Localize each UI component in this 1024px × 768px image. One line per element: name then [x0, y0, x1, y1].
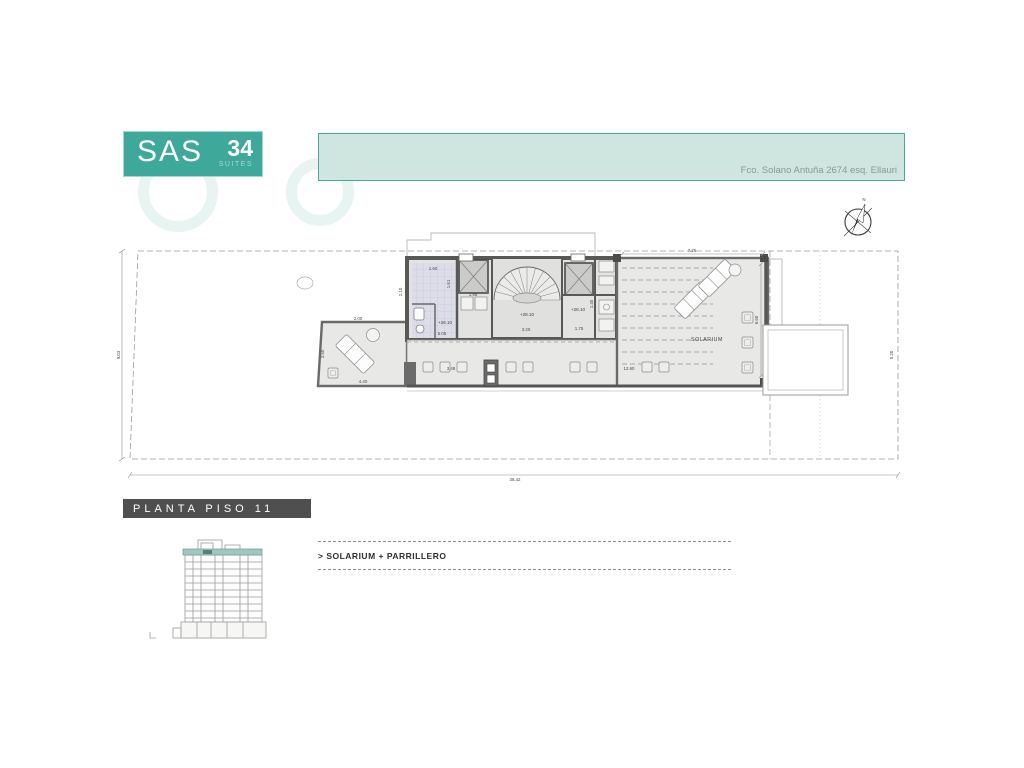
elevator-shaft-icon — [565, 263, 593, 295]
building-elevation-key — [145, 520, 275, 645]
compass-north-label: N — [862, 197, 865, 202]
elevator-shaft-icon — [459, 260, 488, 293]
terrace-table — [367, 329, 380, 342]
plan-sheet: { "header": { "logo": { "brand": "SAS", … — [0, 0, 1024, 768]
highlighted-floor-band — [183, 549, 262, 555]
dim-solarium-right: 6.60 — [754, 315, 759, 324]
dim-strip-side: 1.40 — [589, 299, 594, 308]
dim-site-left: 9.03 — [116, 350, 121, 359]
plan-title: PLANTA PISO 11 — [133, 503, 274, 515]
planter — [328, 368, 338, 378]
solarium-label: SOLARIUM — [691, 337, 723, 343]
plan-title-bar: PLANTA PISO 11 — [123, 499, 311, 518]
wall-pier — [760, 254, 768, 262]
dim-bath-side: 1.61 — [446, 279, 451, 288]
solarium-room — [613, 254, 770, 386]
solarium-planters — [742, 312, 753, 373]
legend-text: > SOLARIUM + PARRILLERO — [318, 551, 446, 561]
legend-strip: > SOLARIUM + PARRILLERO — [318, 541, 731, 570]
level-stair-landing: +28.10 — [520, 312, 535, 317]
dim-terrace-left: 3.50 — [320, 349, 325, 358]
dim-room-bottom: 1.75 — [575, 326, 584, 331]
dim-site-right: 9.20 — [889, 350, 894, 359]
floor-plan-drawing: 9.03 38.42 9.20 N 2 — [115, 192, 910, 487]
logo-suite-count: 34 SUITES — [219, 137, 253, 168]
toilet-icon — [414, 308, 424, 320]
yard-tree — [297, 277, 313, 289]
logo-suffix: SUITES — [219, 161, 253, 168]
dim-bath-closet: 1.98 — [469, 292, 478, 297]
chimney-icon — [484, 360, 498, 386]
wall-pier — [404, 362, 416, 386]
dim-bath-top: 1.60 — [429, 266, 438, 271]
solarium-table — [729, 264, 741, 276]
logo-box: SAS 34 SUITES — [123, 131, 263, 177]
dim-core-left: 2.10 — [398, 287, 403, 296]
dim-terrace-top: 2.00 — [354, 316, 363, 321]
wall-pier — [613, 254, 621, 262]
logo-number: 34 — [219, 137, 253, 160]
north-compass-icon: N — [844, 197, 872, 236]
dim-terrace-bottom: 4.40 — [359, 379, 368, 384]
level-bathroom: +28.10 — [438, 320, 453, 325]
parrillero-counter — [599, 261, 614, 272]
dim-deck-bottom-right: 12.60 — [624, 366, 636, 371]
dim-solarium-top: 7.25 — [688, 248, 697, 253]
project-address: Fco. Solano Antuña 2674 esq. Ellauri — [741, 165, 897, 176]
sink-icon — [416, 325, 424, 333]
dim-deck-bottom-left: 3.48 — [447, 366, 456, 371]
dim-bath-bottom: 5.05 — [438, 331, 447, 336]
building-core — [407, 254, 617, 340]
dim-site-bottom: 38.42 — [510, 477, 522, 482]
level-room: +28.10 — [571, 307, 586, 312]
dim-stair-bottom: 3.20 — [522, 327, 531, 332]
logo-brand: SAS — [137, 137, 203, 167]
address-banner: Fco. Solano Antuña 2674 esq. Ellauri — [318, 133, 905, 181]
adjacent-roof-outline — [763, 325, 848, 395]
left-terrace — [318, 322, 407, 386]
roof-overhang-outline — [407, 233, 595, 258]
stair — [492, 258, 562, 338]
